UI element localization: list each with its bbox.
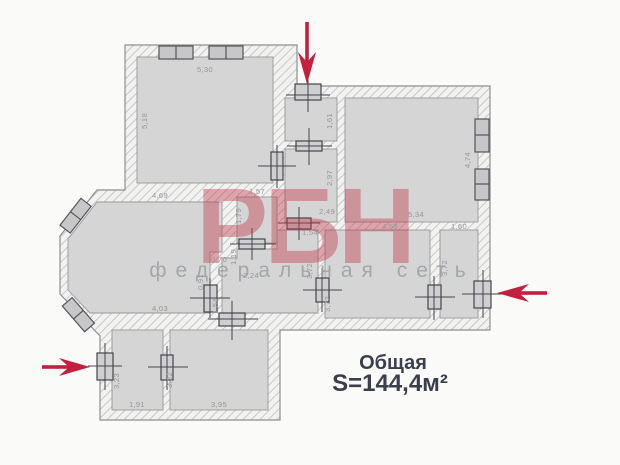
dim-topleft-width: 5,30 [197, 65, 213, 74]
room-bottom-small [112, 330, 163, 410]
floor-plan-canvas: РБН федеральная сеть 5,30 5,18 1,61 2,97… [0, 0, 620, 465]
total-area-value: S=144,4м² [332, 370, 448, 397]
window-top-left-1 [159, 46, 193, 59]
floor-plan-page: РБН федеральная сеть 5,30 5,18 1,61 2,97… [0, 0, 620, 465]
dim-passage-width: 0,70 [211, 255, 227, 264]
dim-rightsmall-width: 1,60 [451, 222, 467, 231]
entrance-arrow-left [42, 358, 90, 376]
window-top-left-2 [209, 46, 243, 59]
entrance-arrow-top [298, 22, 316, 84]
dim-living-door-a: 0,91 [196, 274, 205, 290]
dim-bottomlarge-height: 3,22 [165, 372, 174, 388]
window-top-right-2 [475, 169, 489, 200]
dim-topright-height: 4,74 [463, 152, 472, 168]
dim-living-bottom: 4,03 [152, 304, 168, 313]
dim-wc-width: 1,57 [249, 187, 265, 196]
dim-hall-height: 2,97 [325, 170, 334, 186]
dim-corridor-height: 3,72 [305, 263, 314, 279]
room-bottom-large [170, 330, 268, 410]
dim-bottomlarge-width: 3,95 [211, 400, 227, 409]
dim-vestibule-height: 1,61 [325, 113, 334, 129]
dim-corridor-width: 2,49 [319, 207, 335, 216]
dim-midright-width: 4,55 [382, 222, 398, 231]
entrance-arrow-right [497, 284, 547, 302]
dim-living-door-b: 1,54 [211, 298, 220, 314]
dim-topleft-height: 5,18 [140, 113, 149, 129]
dim-corridor2-width: 2,24 [243, 271, 259, 280]
dim-bottomsmall-width: 1,91 [129, 400, 145, 409]
dim-rightsmall-height: 3,72 [440, 260, 449, 276]
dim-living-top: 4,69 [152, 191, 168, 200]
dim-midright-height: 3,72 [323, 296, 332, 312]
dim-bottomsmall-height: 3,23 [112, 373, 121, 389]
dim-passage-height: 1,19 [229, 249, 238, 265]
window-top-right-1 [475, 119, 489, 152]
dim-wc-height: 1,79 [234, 208, 243, 224]
dim-topright-width: 5,34 [408, 210, 424, 219]
dim-door-width: 1,54 [302, 228, 318, 237]
